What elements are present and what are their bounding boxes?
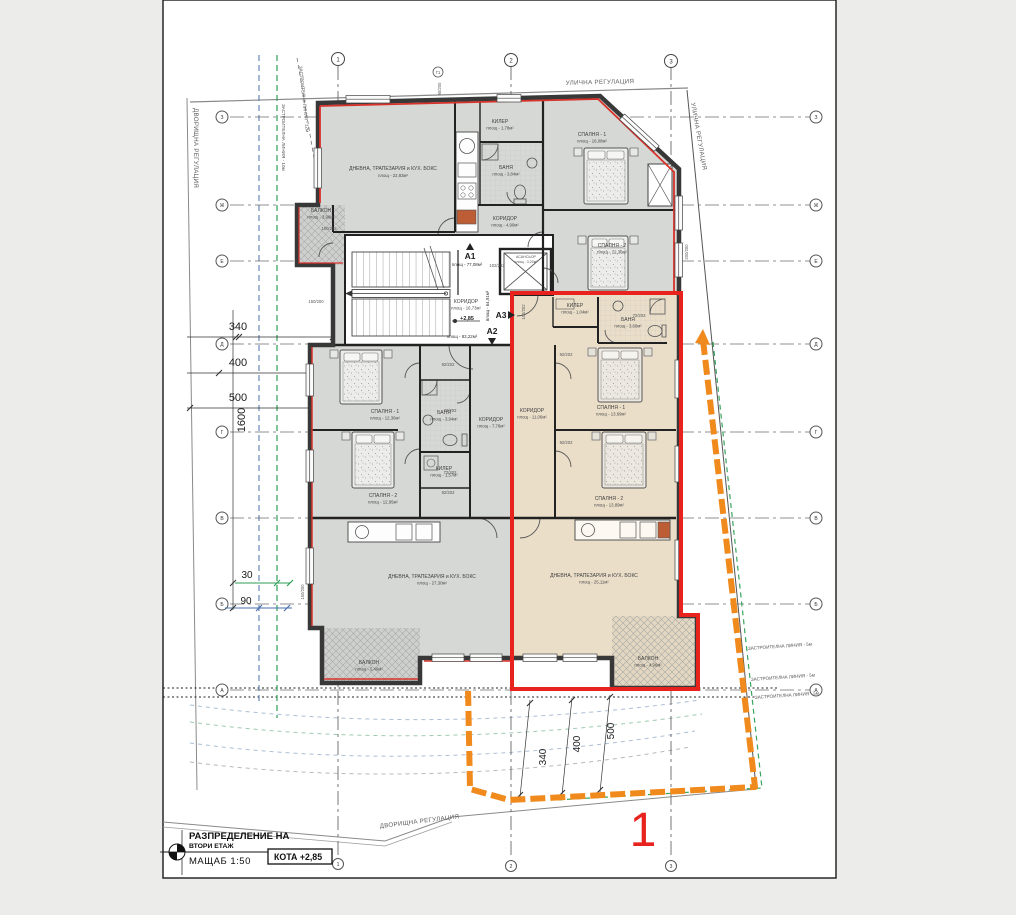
title-scale: МАЩАБ 1:50 xyxy=(189,856,251,867)
core-corridor-area: площ - 16,73м² xyxy=(451,306,481,311)
room-label: СПАЛНЯ - 2 xyxy=(369,493,398,499)
room-area: площ - 11,06м² xyxy=(517,415,547,420)
axis-row-label: Ж xyxy=(220,203,225,209)
room-label: ДНЕВНА, ТРАПЕЗАРИЯ и КУХ. БОКС xyxy=(349,166,437,172)
opening-tag: 92/202 xyxy=(442,362,455,367)
opening-tag: 92/202 xyxy=(442,490,455,495)
building-line-10-label: ЗАСТРОИТЕЛНА ЛИНИЯ - 10м xyxy=(281,104,286,171)
dim-340-bottom: 340 xyxy=(538,748,549,765)
staircase xyxy=(345,246,450,336)
room-area: площ - 7,78м² xyxy=(477,424,505,429)
room-area: площ - 4,96м² xyxy=(634,663,662,668)
room-label: СПАЛНЯ - 1 xyxy=(578,132,607,138)
title-line1: РАЗПРЕДЕЛЕНИЕ НА xyxy=(189,831,289,842)
room-area: площ - 16,08м² xyxy=(577,139,607,144)
bed xyxy=(588,348,652,402)
opening-tag: 102/202 xyxy=(489,263,505,268)
elevator-name: АСАНСЬОР xyxy=(516,255,536,259)
room-area: площ - 12,95м² xyxy=(368,500,398,505)
room-area: площ - 13,89м² xyxy=(594,503,624,508)
axis-row-label: З xyxy=(814,115,817,121)
yard-regulation-left-label: ДВОРИЩНА РЕГУЛАЦИЯ xyxy=(192,108,199,188)
room-label: ДНЕВНА, ТРАПЕЗАРИЯ и КУХ. БОКС xyxy=(388,574,476,580)
room-label: БАЛКОН xyxy=(638,656,659,662)
dim-500-bottom: 500 xyxy=(606,722,617,739)
opening-tag: 200/200 xyxy=(684,244,689,260)
bed xyxy=(592,432,656,488)
axis-row-label: Ж xyxy=(814,203,819,209)
plot-number: 1 xyxy=(630,804,657,857)
dim-30-green: 30 xyxy=(241,570,253,581)
room-label: КИЛЕР xyxy=(567,303,584,309)
opening-tag: 92/202 xyxy=(560,352,573,357)
room-label: БАНЯ xyxy=(499,165,513,171)
axis-row-label: З xyxy=(220,115,223,121)
room-label: БАЛКОН xyxy=(359,660,380,666)
dim-90-blue: 90 xyxy=(240,596,252,607)
room-area: площ - 25,11м² xyxy=(579,580,609,585)
room-area: площ - 5,49м² xyxy=(355,667,383,672)
unit-a1-tag: А1 xyxy=(465,251,476,261)
axis-col-label: 1 xyxy=(337,862,340,868)
room-area: площ - 3,94м² xyxy=(430,417,458,422)
room-area: площ - 12,36м² xyxy=(370,416,400,421)
unit-a3-tag: А3 xyxy=(496,310,507,320)
bed xyxy=(574,148,638,204)
axis-row-label: Г xyxy=(815,430,818,436)
room-label: БАЛКОН xyxy=(311,208,332,214)
room-label: СПАЛНЯ - 1 xyxy=(597,405,626,411)
room-area: площ - 13,69м² xyxy=(596,412,626,417)
room-label: КИЛЕР xyxy=(492,119,509,125)
title-line2: ВТОРИ ЕТАЖ xyxy=(189,843,234,850)
opening-tag: 72/202 xyxy=(633,313,646,318)
room-area: площ - 27,30м² xyxy=(417,581,447,586)
room-area: площ - 3,60м² xyxy=(614,324,642,329)
unit-a3-area: площ - 64,91м² xyxy=(485,290,490,321)
opening-tag: 90/200 xyxy=(437,82,442,95)
axis-col-label: 2 xyxy=(510,864,513,870)
room-area: площ - 1,04м² xyxy=(561,310,589,315)
kota-label: КОТА +2,85 xyxy=(274,852,322,862)
elevator-area: площ - 3,20м² xyxy=(515,260,539,264)
room-label: КОРИДОР xyxy=(493,216,518,222)
room-label: ДНЕВНА, ТРАПЕЗАРИЯ и КУХ. БОКС xyxy=(550,573,638,579)
opening-tag: 100/205 xyxy=(321,226,337,231)
room-area: площ - 4,90м² xyxy=(491,223,519,228)
dim-340: 340 xyxy=(229,321,247,333)
opening-tag: 150/200 xyxy=(308,299,324,304)
opening-tag: 102/202 xyxy=(521,304,526,320)
opening-tag: 72/202 xyxy=(444,470,457,475)
unit-a2-tag: А2 xyxy=(487,326,498,336)
kitchen-counter xyxy=(456,132,478,232)
dim-400: 400 xyxy=(229,357,247,369)
room-label: КОРИДОР xyxy=(479,417,504,423)
axis-col-label: 3 xyxy=(670,864,673,870)
dim-1600: 1600 xyxy=(236,408,248,432)
level-marker-icon xyxy=(453,319,457,323)
window-type-tag: Г1 xyxy=(436,70,441,75)
unit-a1-area: площ - 77,08м² xyxy=(452,262,483,267)
room-area: площ - 3,96м² xyxy=(307,215,335,220)
dim-500: 500 xyxy=(229,392,247,404)
opening-tag: 92/202 xyxy=(560,440,573,445)
opening-tag: 72/202 xyxy=(444,408,457,413)
room-area: площ - 1,78м² xyxy=(486,126,514,131)
axis-row-label: Г xyxy=(221,430,224,436)
floor-plan-drawing: 1 2 3 1 2 3 З Ж Е Д Г В Б А З Ж Е Д Г В … xyxy=(0,0,1016,915)
room-area: площ - 22,83м² xyxy=(378,173,408,178)
dim-400-bottom: 400 xyxy=(572,735,583,752)
core-corridor-name: КОРИДОР xyxy=(454,299,479,305)
kitchen-counter xyxy=(575,520,670,540)
kitchen-counter xyxy=(348,522,440,542)
wardrobe xyxy=(648,164,672,206)
room-area: площ - 3,84м² xyxy=(492,172,520,177)
room-label: СПАЛНЯ - 2 xyxy=(598,243,627,249)
room-label: СПАЛНЯ - 1 xyxy=(371,409,400,415)
room-area: площ - 12,36м² xyxy=(597,250,627,255)
opening-tag: 150/200 xyxy=(300,584,305,600)
room-label: КОРИДОР xyxy=(520,408,545,414)
room-label: СПАЛНЯ - 2 xyxy=(595,496,624,502)
floor-plan-page: 1 2 3 1 2 3 З Ж Е Д Г В Б А З Ж Е Д Г В … xyxy=(0,0,1016,915)
unit-a2-area: площ - 83,22м² xyxy=(447,334,478,339)
